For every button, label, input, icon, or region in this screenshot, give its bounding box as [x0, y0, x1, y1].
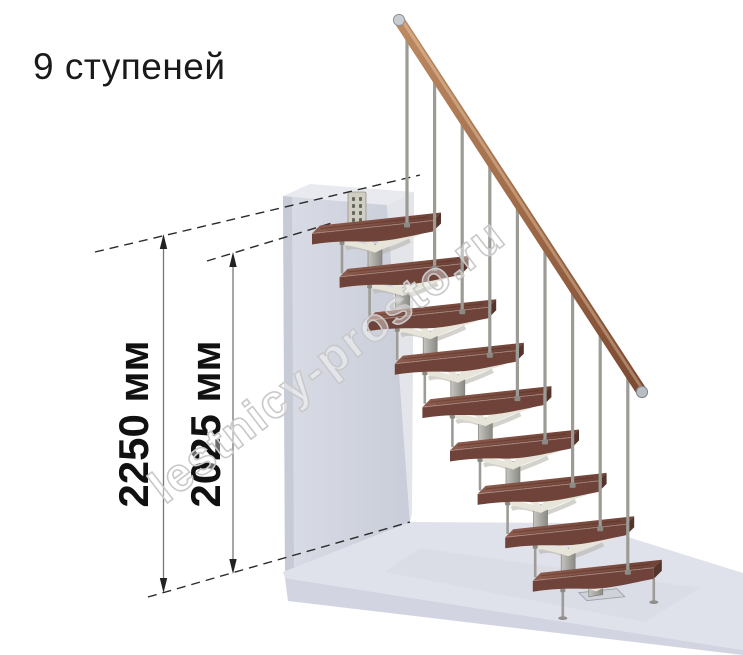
- rod-collar: [533, 545, 538, 549]
- rod-foot: [558, 616, 567, 620]
- baluster-collar: [625, 570, 631, 575]
- page-title: 9 ступеней: [33, 46, 226, 87]
- rod-foot: [649, 600, 658, 604]
- baluster-collar: [542, 440, 548, 445]
- baluster-collar: [514, 396, 520, 401]
- dimension-2250: 2250 мм: [110, 234, 167, 593]
- arrow-down-icon: [160, 578, 167, 593]
- baluster-collar: [459, 309, 465, 314]
- rod-collar: [422, 372, 427, 376]
- baluster-collar: [404, 223, 410, 228]
- baluster-collar: [570, 483, 576, 488]
- handrail-bottom-cap: [636, 386, 647, 397]
- baluster-collar: [487, 353, 493, 358]
- arrow-up-icon: [229, 252, 236, 267]
- rod-collar: [367, 285, 372, 289]
- rod-collar: [505, 502, 510, 506]
- rod-collar: [560, 589, 565, 593]
- rod-collar: [478, 459, 483, 463]
- baluster-collar: [597, 526, 603, 531]
- staircase-diagram: 2250 мм 2025 мм 9 ступеней lestnicy-pros…: [0, 0, 743, 655]
- rod-collar: [340, 242, 345, 246]
- handrail-top-cap: [393, 14, 404, 25]
- rod-collar: [450, 415, 455, 419]
- diagram-canvas: 2250 мм 2025 мм 9 ступеней lestnicy-pros…: [0, 0, 743, 655]
